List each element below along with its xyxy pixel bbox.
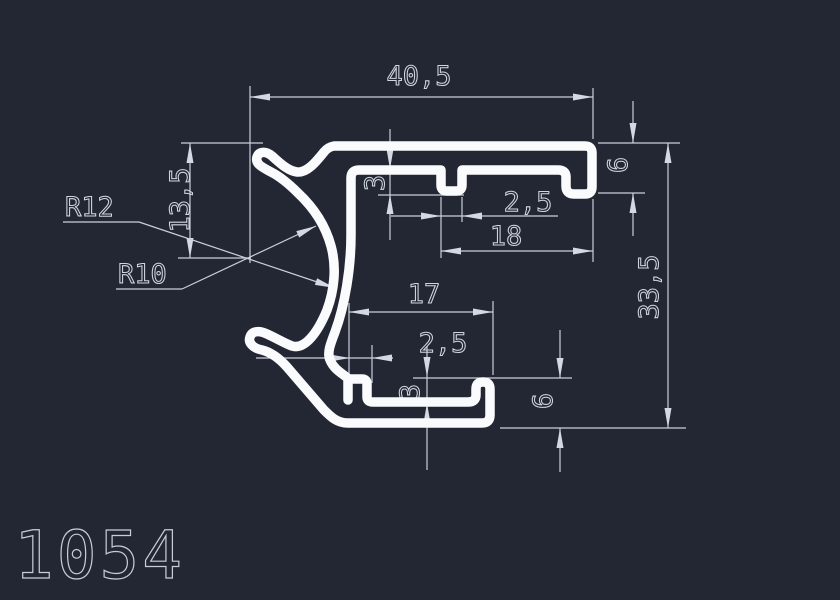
arrowhead <box>296 226 316 238</box>
dim-label-top-tooth-width: 2,5 <box>504 187 553 218</box>
arrowhead <box>557 358 564 378</box>
dim-label-radius-inner: R10 <box>118 259 167 290</box>
dim-label-bottom-groove-height: 6 <box>528 393 559 409</box>
drawing-svg: 40,5 13,5 R12 R10 <box>0 0 840 600</box>
dim-label-top-tooth-depth: 3 <box>360 175 391 191</box>
arrowhead <box>250 94 270 101</box>
arrowhead <box>372 355 392 362</box>
leader-radius-outer: R12 <box>63 192 335 288</box>
arrowhead <box>665 143 672 163</box>
profile-number-label: 1054 <box>14 517 185 594</box>
dim-label-claw-height: 13,5 <box>165 167 196 232</box>
cad-drawing-canvas: 40,5 13,5 R12 R10 <box>0 0 840 600</box>
arrowhead <box>187 238 194 258</box>
dimension-bottom-groove-width: 17 <box>349 279 493 375</box>
dim-label-top-groove-width: 18 <box>490 221 523 252</box>
dimension-layer: 40,5 13,5 R12 R10 <box>63 61 686 472</box>
dimension-top-tooth-width: 2,5 <box>391 187 558 258</box>
arrowhead <box>573 248 593 255</box>
arrowhead <box>557 428 564 448</box>
dim-label-radius-outer: R12 <box>65 192 114 223</box>
arrowhead <box>665 408 672 428</box>
dim-label-bottom-groove-width: 17 <box>408 279 441 310</box>
arrowhead <box>441 248 461 255</box>
dimension-bottom-groove-height: 6 <box>528 330 564 472</box>
arrowhead <box>187 143 194 163</box>
arrowhead <box>424 357 431 377</box>
arrowhead <box>387 194 394 214</box>
dim-label-top-groove-height: 6 <box>603 157 634 173</box>
arrowhead <box>573 94 593 101</box>
dim-label-overall-width: 40,5 <box>386 61 451 92</box>
arrowhead <box>349 309 369 316</box>
arrowhead <box>421 213 441 220</box>
dimension-claw-height: 13,5 <box>165 143 263 258</box>
dim-label-bottom-tooth-width: 2,5 <box>419 328 468 359</box>
arrowhead <box>462 213 482 220</box>
arrowhead <box>630 193 637 213</box>
arrowhead <box>473 309 493 316</box>
dim-label-overall-height: 33,5 <box>634 254 665 319</box>
arrowhead <box>630 123 637 143</box>
